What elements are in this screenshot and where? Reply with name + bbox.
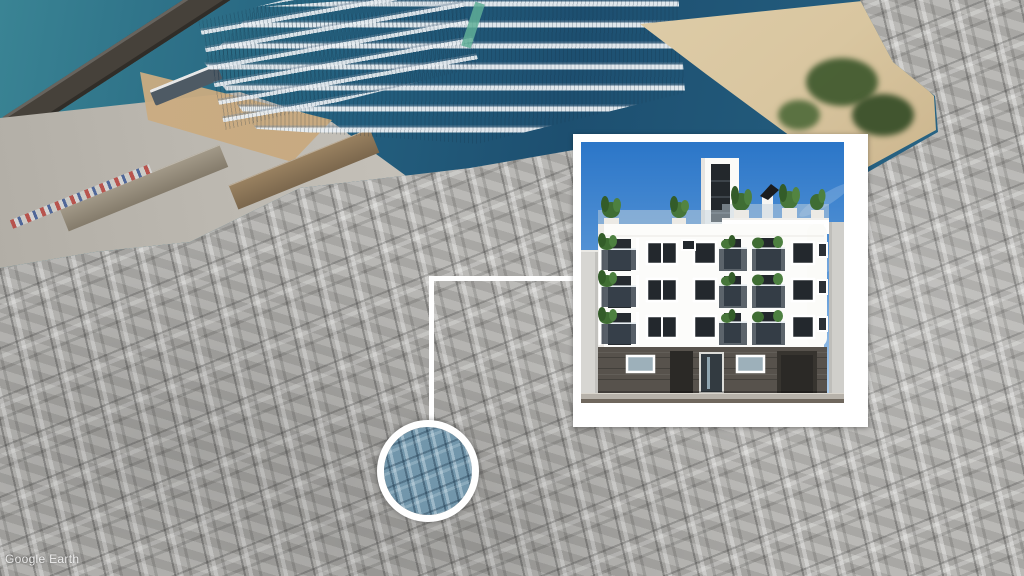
dark-panel [670,351,693,393]
street [581,391,844,403]
building-inset-frame [573,134,868,427]
park-tree-canopy [778,100,820,130]
dark-storefront-inner [781,355,813,393]
callout-connector-horizontal [429,276,577,281]
road [581,399,844,403]
building-render [581,142,844,403]
sidewalk [581,394,844,399]
marker-map-tint [384,427,472,515]
entrance-door [700,353,723,393]
google-earth-watermark: Google Earth [5,552,79,566]
map-canvas: Google Earth [0,0,1024,576]
door-glass [707,357,710,389]
neighbor-building-left [581,250,598,394]
ground-floor [598,347,827,393]
park-tree-canopy [852,94,914,136]
callout-connector-vertical [429,276,434,422]
small-square-window [682,240,695,250]
ground-window [737,356,764,372]
location-marker-circle [377,420,479,522]
ground-window [627,356,654,372]
neighbor-building-right [829,222,844,394]
